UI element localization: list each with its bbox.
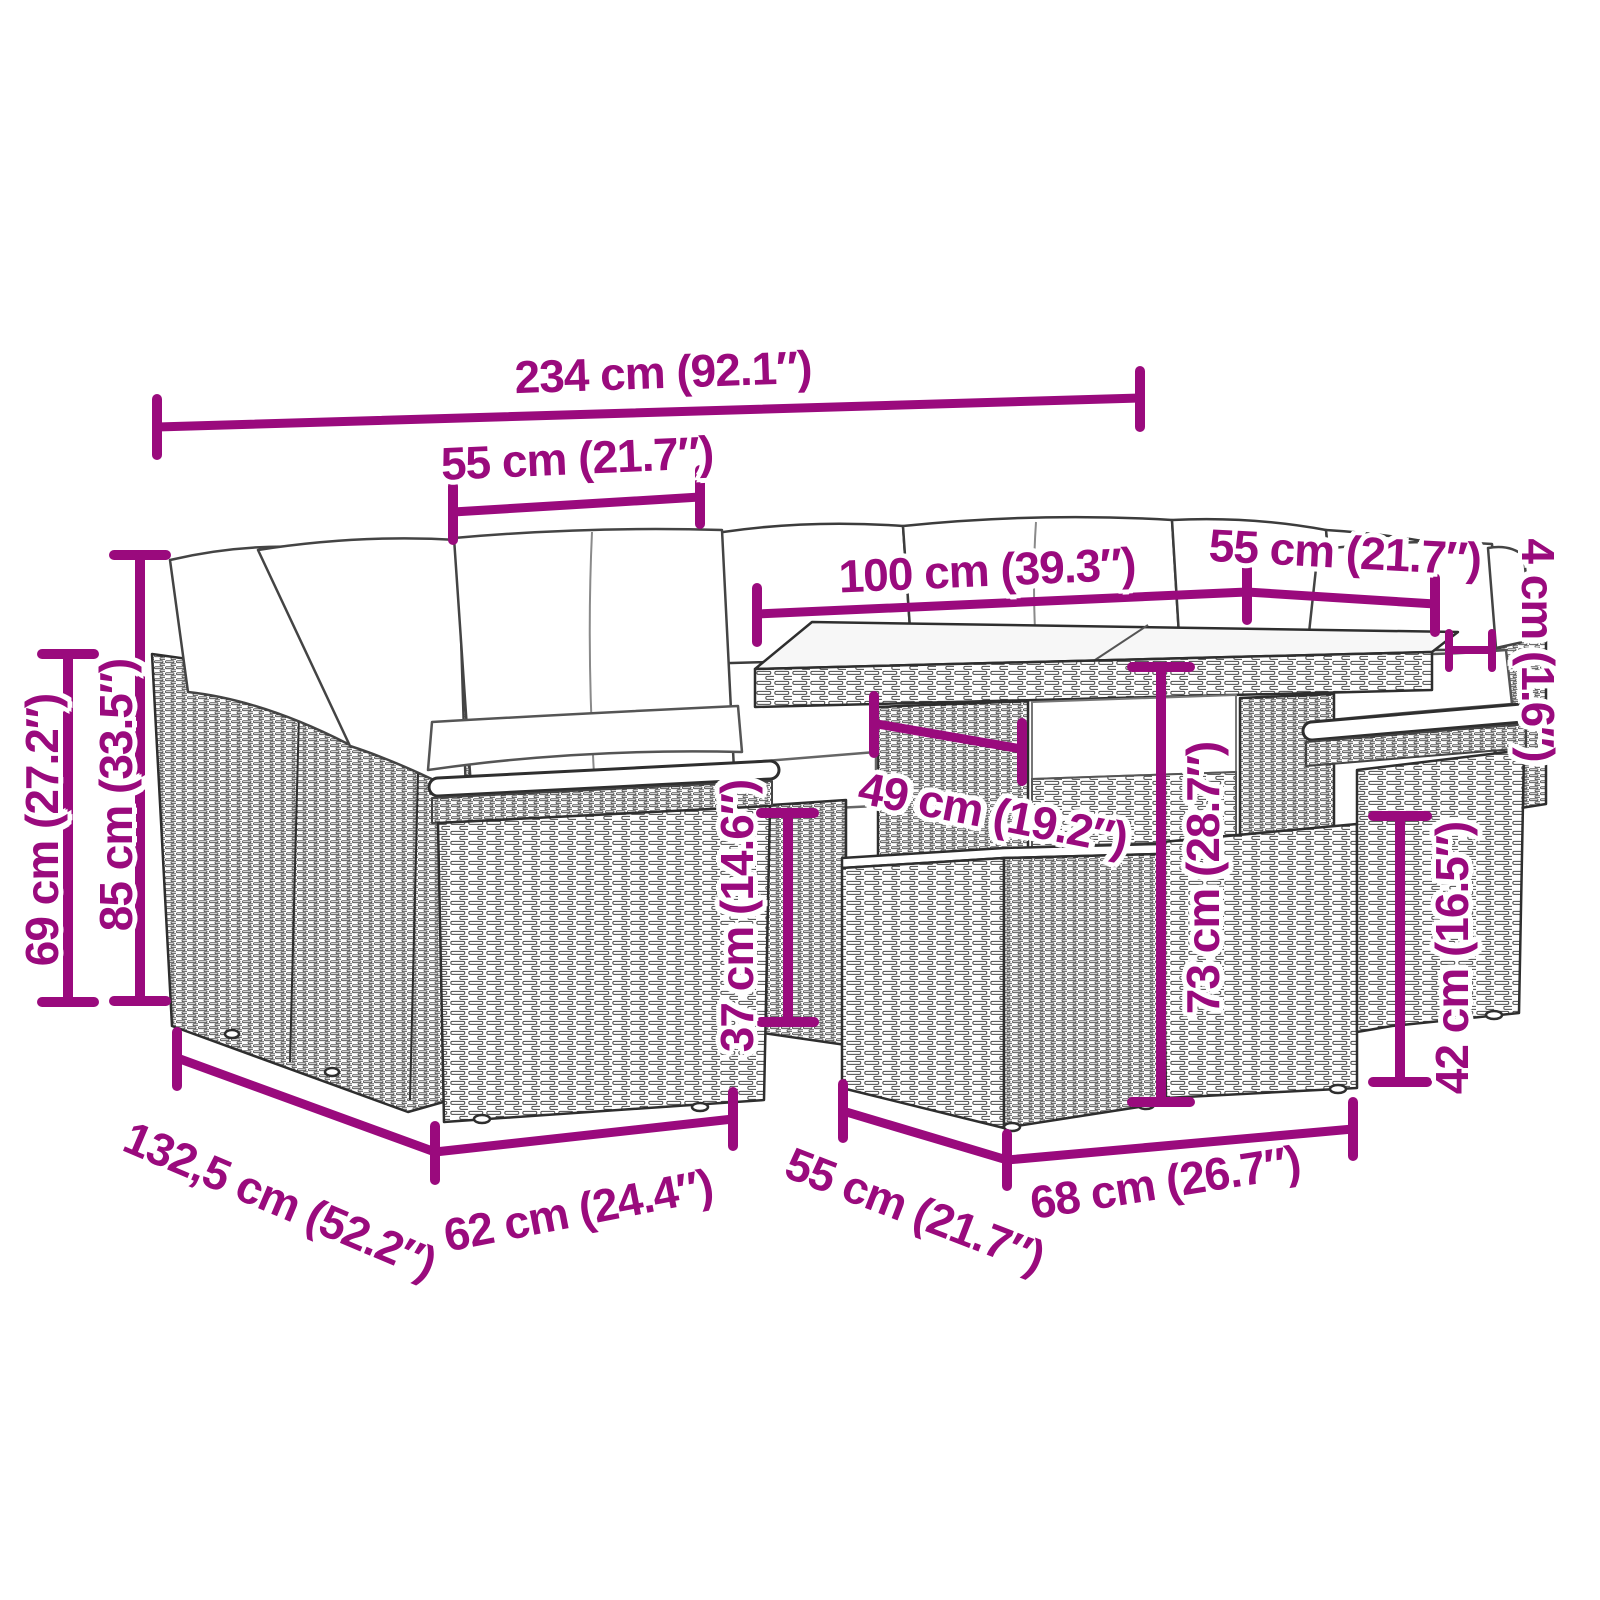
dimension-label-seat-height: 37 cm (14.6″) (710, 780, 764, 1052)
furniture-illustration (0, 0, 1600, 1600)
dimension-label-tabletop-thickness: 4 cm (1.6″) (1511, 538, 1565, 761)
footstool (842, 844, 1160, 1131)
dimension-label-overall-width: 234 cm (92.1″) (514, 340, 813, 404)
dimension-label-back-height: 85 cm (33.5″) (89, 659, 143, 931)
dimension-label-table-height: 73 cm (28.7″) (1176, 742, 1230, 1014)
dimension-label-footstool-height: 42 cm (16.5″) (1425, 822, 1479, 1094)
dimension-label-armrest-height: 69 cm (27.2″) (15, 694, 69, 966)
product-dimension-image: 234 cm (92.1″) 55 cm (21.7″) 100 cm (39.… (0, 0, 1600, 1600)
